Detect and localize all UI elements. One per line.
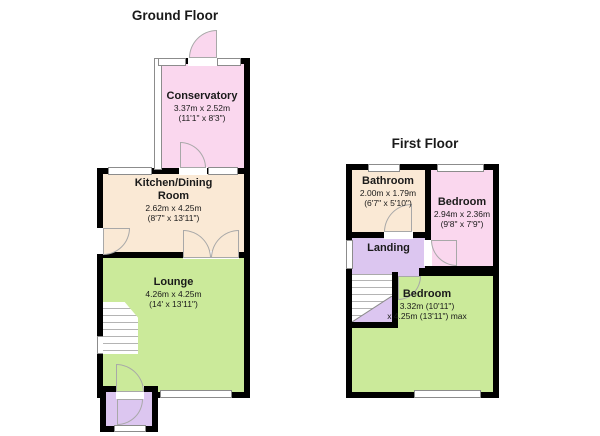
stairs-bottom-wall bbox=[352, 322, 398, 328]
conservatory-metric: 3.37m x 2.52m bbox=[158, 103, 246, 113]
kitchen-name-line1: Kitchen/Dining bbox=[101, 177, 246, 190]
bedroom1-metric: 2.94m x 2.36m bbox=[426, 209, 498, 219]
floorplan-canvas: Ground Floor Conservatory 3.37m x 2.52m … bbox=[0, 0, 600, 436]
bedroom2-window bbox=[414, 390, 481, 398]
landing-stairs-edge bbox=[352, 274, 392, 275]
bathroom-name: Bathroom bbox=[348, 175, 428, 188]
lounge-label: Lounge 4.26m x 4.25m (14' x 13'11") bbox=[101, 276, 246, 309]
porch-sill-window bbox=[114, 425, 146, 432]
landing-name: Landing bbox=[352, 242, 425, 255]
kitchen-label: Kitchen/Dining Room 2.62m x 4.25m (8'7" … bbox=[101, 177, 246, 223]
kitchen-metric: 2.62m x 4.25m bbox=[101, 203, 246, 213]
lounge-side-window bbox=[97, 336, 104, 354]
bedroom2-metric: 3.32m (10'11") bbox=[362, 301, 492, 311]
bedroom1-bedroom2-wall bbox=[425, 266, 499, 276]
ground-floor-title: Ground Floor bbox=[105, 8, 245, 23]
conservatory-label: Conservatory 3.37m x 2.52m (11'1" x 8'3"… bbox=[158, 90, 246, 123]
bedroom2-name: Bedroom bbox=[362, 288, 492, 301]
bathroom-window bbox=[368, 164, 400, 172]
landing-bedroom2-wall bbox=[419, 268, 432, 276]
lounge-front-window bbox=[160, 390, 232, 398]
bedroom2-imperial: x 4.25m (13'11") max bbox=[362, 311, 492, 321]
conservatory-imperial: (11'1" x 8'3") bbox=[158, 113, 246, 123]
conservatory-kitchen-window bbox=[208, 167, 238, 175]
bedroom2-label: Bedroom 3.32m (10'11") x 4.25m (13'11") … bbox=[362, 288, 492, 321]
kitchen-name-line2: Room bbox=[101, 190, 246, 203]
conservatory-kitchen-door-gap bbox=[179, 167, 207, 175]
bathroom-metric: 2.00m x 1.79m bbox=[348, 188, 428, 198]
bathroom-door-gap bbox=[384, 231, 413, 239]
bedroom1-window bbox=[437, 164, 484, 172]
bathroom-label: Bathroom 2.00m x 1.79m (6'7" x 5'10") bbox=[348, 175, 428, 208]
conservatory-top-window-right bbox=[217, 58, 241, 66]
first-floor-title: First Floor bbox=[360, 136, 490, 151]
bedroom1-name: Bedroom bbox=[426, 196, 498, 209]
landing-label: Landing bbox=[352, 242, 425, 255]
bedroom1-imperial: (9'8" x 7'9") bbox=[426, 219, 498, 229]
lounge-imperial: (14' x 13'11") bbox=[101, 299, 246, 309]
bedroom1-label: Bedroom 2.94m x 2.36m (9'8" x 7'9") bbox=[426, 196, 498, 229]
lounge-name: Lounge bbox=[101, 276, 246, 289]
kitchen-imperial: (8'7" x 13'11") bbox=[101, 213, 246, 223]
conservatory-top-window-left bbox=[158, 58, 186, 66]
conservatory-exterior-door-arc bbox=[189, 30, 217, 58]
bathroom-imperial: (6'7" x 5'10") bbox=[348, 198, 428, 208]
kitchen-top-window bbox=[108, 167, 152, 175]
conservatory-name: Conservatory bbox=[158, 90, 246, 103]
lounge-metric: 4.26m x 4.25m bbox=[101, 289, 246, 299]
conservatory-exterior-door-gap bbox=[188, 58, 217, 66]
